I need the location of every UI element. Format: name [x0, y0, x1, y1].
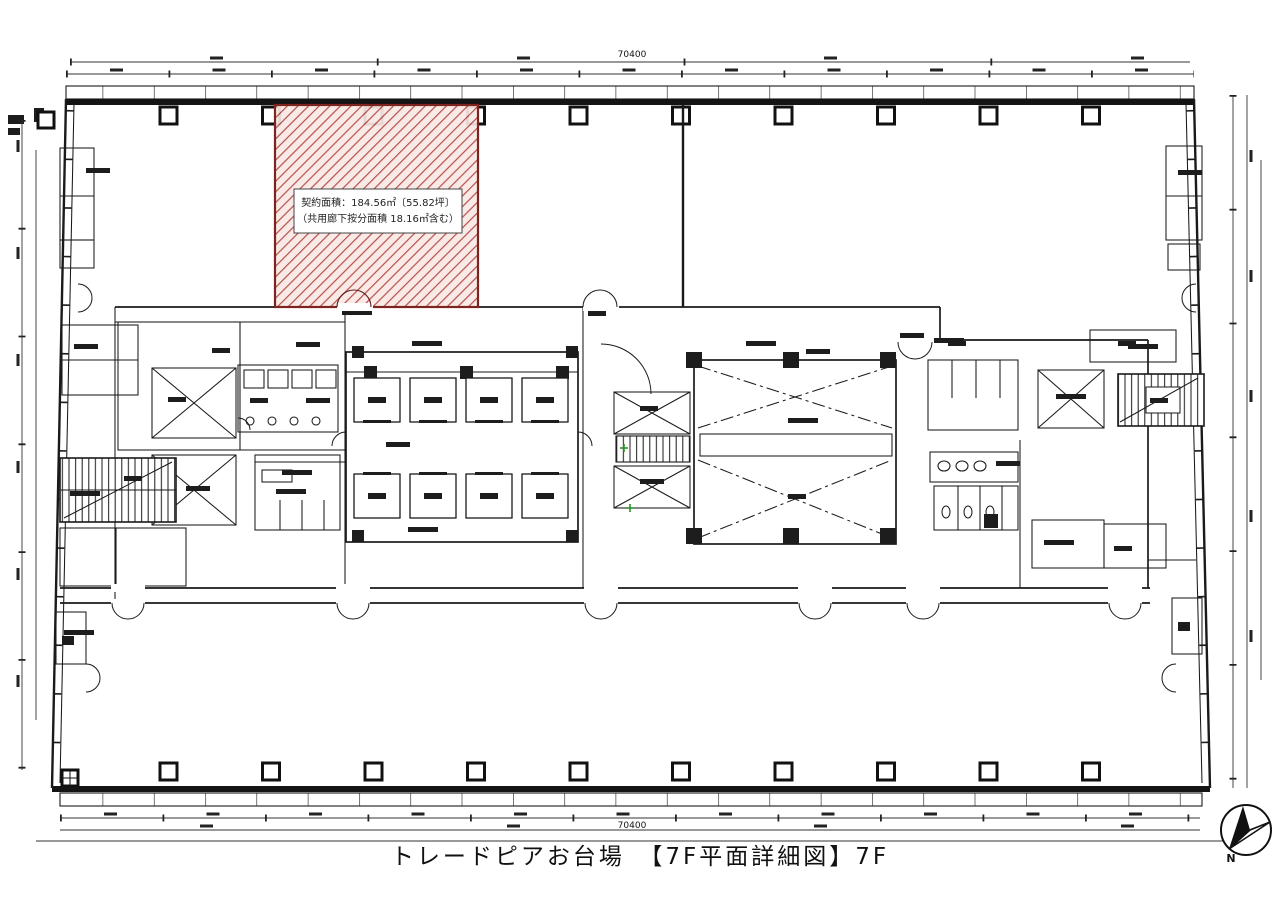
highlighted-lease-area: 契約面積：184.56㎡〔55.82坪〕 （共用廊下按分面積 18.16㎡含む） — [275, 105, 478, 311]
center-void-block — [686, 352, 896, 544]
bottom-dimension-lines: 70400 — [36, 814, 1246, 841]
lease-area-label-line2: （共用廊下按分面積 18.16㎡含む） — [297, 212, 459, 225]
core-right-block — [928, 330, 1204, 568]
left-dimension-lines — [18, 120, 36, 770]
bottom-corridor-doors — [111, 584, 1142, 619]
stair-left — [60, 458, 176, 522]
north-label: N — [1226, 852, 1235, 865]
small-label-marks — [64, 168, 1202, 635]
plan-title: トレードピアお台場 【7F平面詳細図】7F — [391, 844, 889, 870]
floor-plan-page: 70400 — [0, 0, 1280, 904]
top-dimension-lines: 70400 — [66, 50, 1194, 74]
elevator-bank — [332, 346, 592, 542]
north-arrow-icon: N — [1221, 805, 1271, 865]
dimension-top-overall: 70400 — [618, 50, 647, 60]
core-left-block — [60, 322, 345, 586]
lease-area-label: 契約面積：184.56㎡〔55.82坪〕 （共用廊下按分面積 18.16㎡含む） — [294, 189, 462, 233]
floor-plan-drawing: 70400 — [0, 0, 1280, 904]
lease-area-label-line1: 契約面積：184.56㎡〔55.82坪〕 — [301, 196, 455, 209]
perimeter-rooms — [56, 146, 1202, 692]
building-outline — [8, 86, 1210, 806]
dimension-bottom-overall: 70400 — [618, 821, 647, 831]
right-dimension-lines — [1233, 95, 1261, 788]
